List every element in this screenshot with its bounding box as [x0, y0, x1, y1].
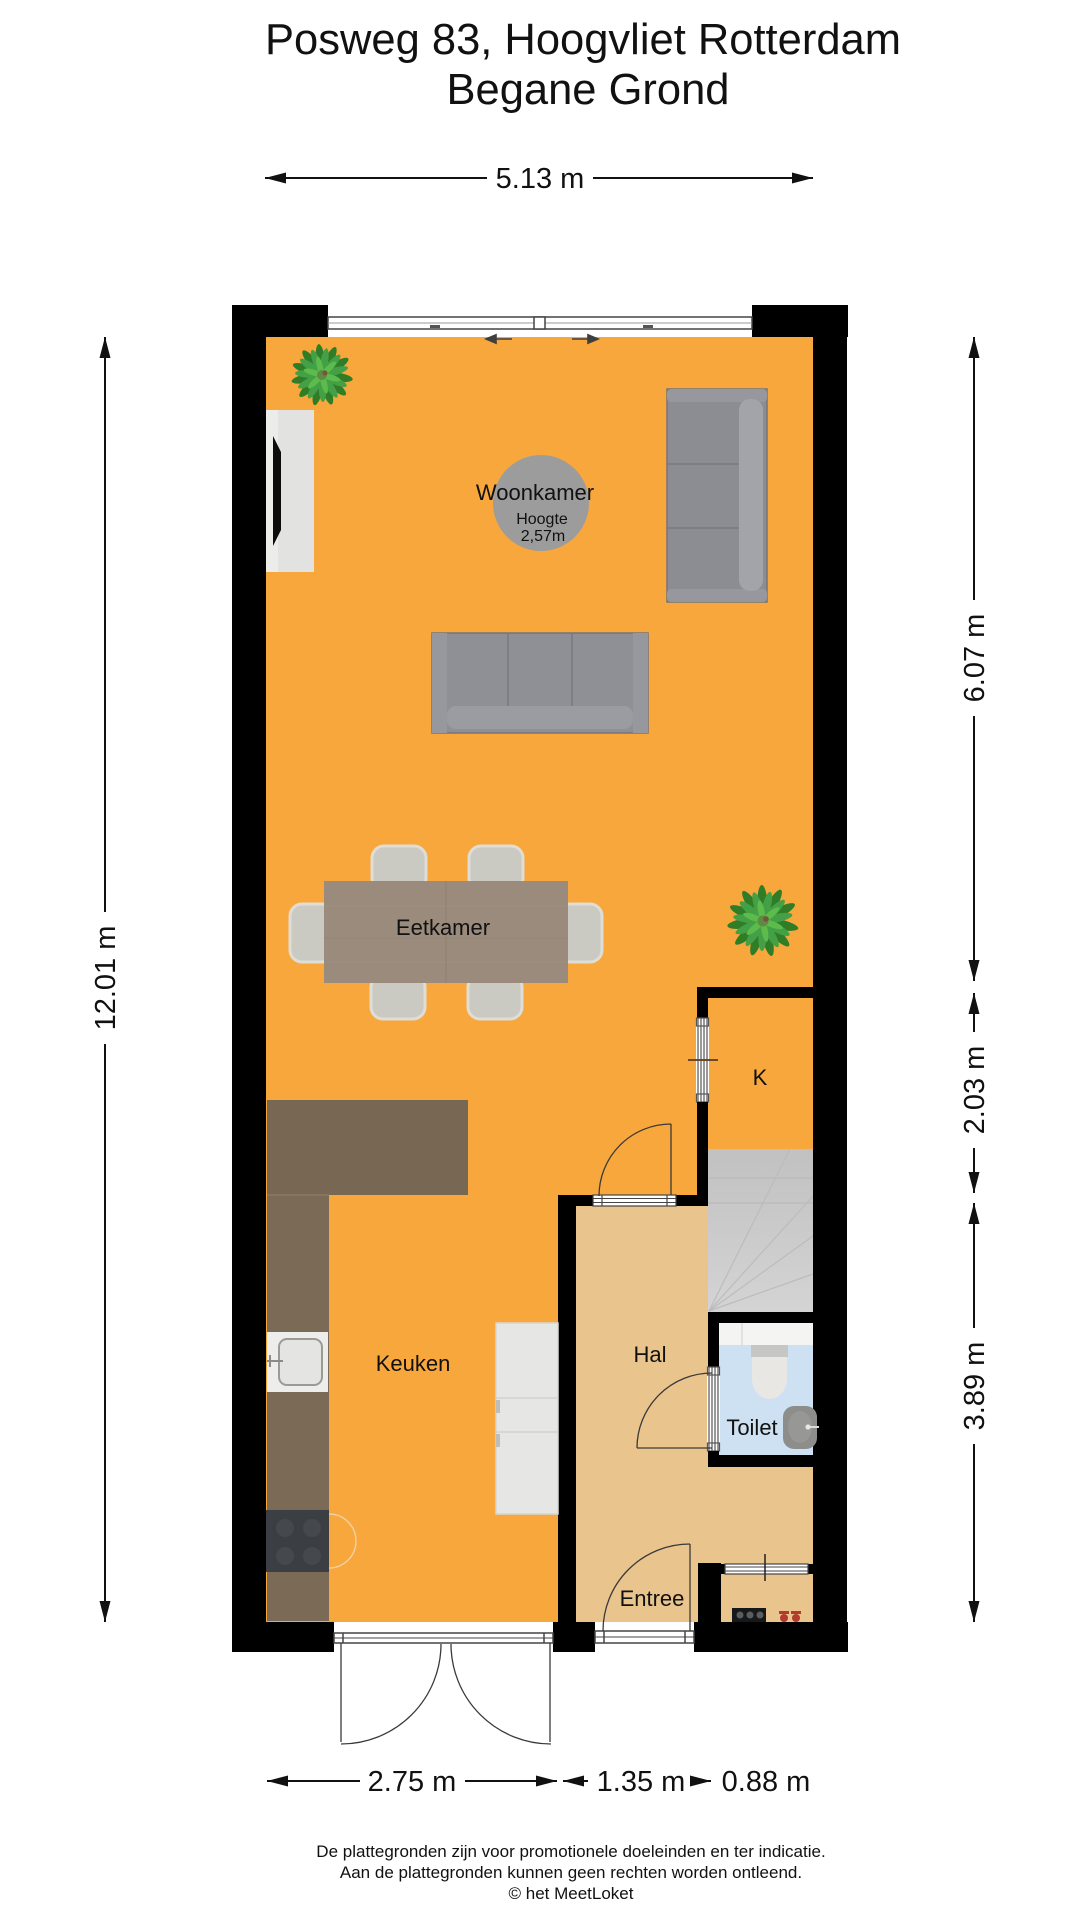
- svg-text:1.35 m: 1.35 m: [597, 1766, 686, 1798]
- svg-text:5.13 m: 5.13 m: [496, 163, 585, 195]
- svg-text:2.75 m: 2.75 m: [368, 1766, 457, 1798]
- svg-text:6.07 m: 6.07 m: [959, 614, 991, 703]
- svg-text:Woonkamer: Woonkamer: [476, 480, 594, 505]
- svg-text:3.89 m: 3.89 m: [959, 1342, 991, 1431]
- svg-text:Eetkamer: Eetkamer: [396, 915, 490, 940]
- svg-text:Keuken: Keuken: [376, 1351, 451, 1376]
- svg-text:© het MeetLoket: © het MeetLoket: [509, 1884, 634, 1903]
- svg-text:Hal: Hal: [633, 1342, 666, 1367]
- svg-text:K: K: [753, 1065, 768, 1090]
- svg-text:De plattegronden zijn voor pro: De plattegronden zijn voor promotionele …: [316, 1842, 825, 1861]
- svg-text:Entree: Entree: [620, 1586, 685, 1611]
- svg-text:2.03 m: 2.03 m: [959, 1046, 991, 1135]
- svg-text:0.88 m: 0.88 m: [722, 1766, 811, 1798]
- svg-text:2,57m: 2,57m: [521, 528, 565, 545]
- svg-text:Posweg 83, Hoogvliet Rotterdam: Posweg 83, Hoogvliet Rotterdam: [265, 16, 901, 64]
- svg-text:Aan de plattegronden kunnen ge: Aan de plattegronden kunnen geen rechten…: [340, 1863, 802, 1882]
- svg-text:Hoogte: Hoogte: [516, 511, 568, 528]
- svg-text:12.01 m: 12.01 m: [90, 926, 122, 1031]
- svg-text:Toilet: Toilet: [726, 1415, 777, 1440]
- svg-text:Begane Grond: Begane Grond: [447, 66, 730, 114]
